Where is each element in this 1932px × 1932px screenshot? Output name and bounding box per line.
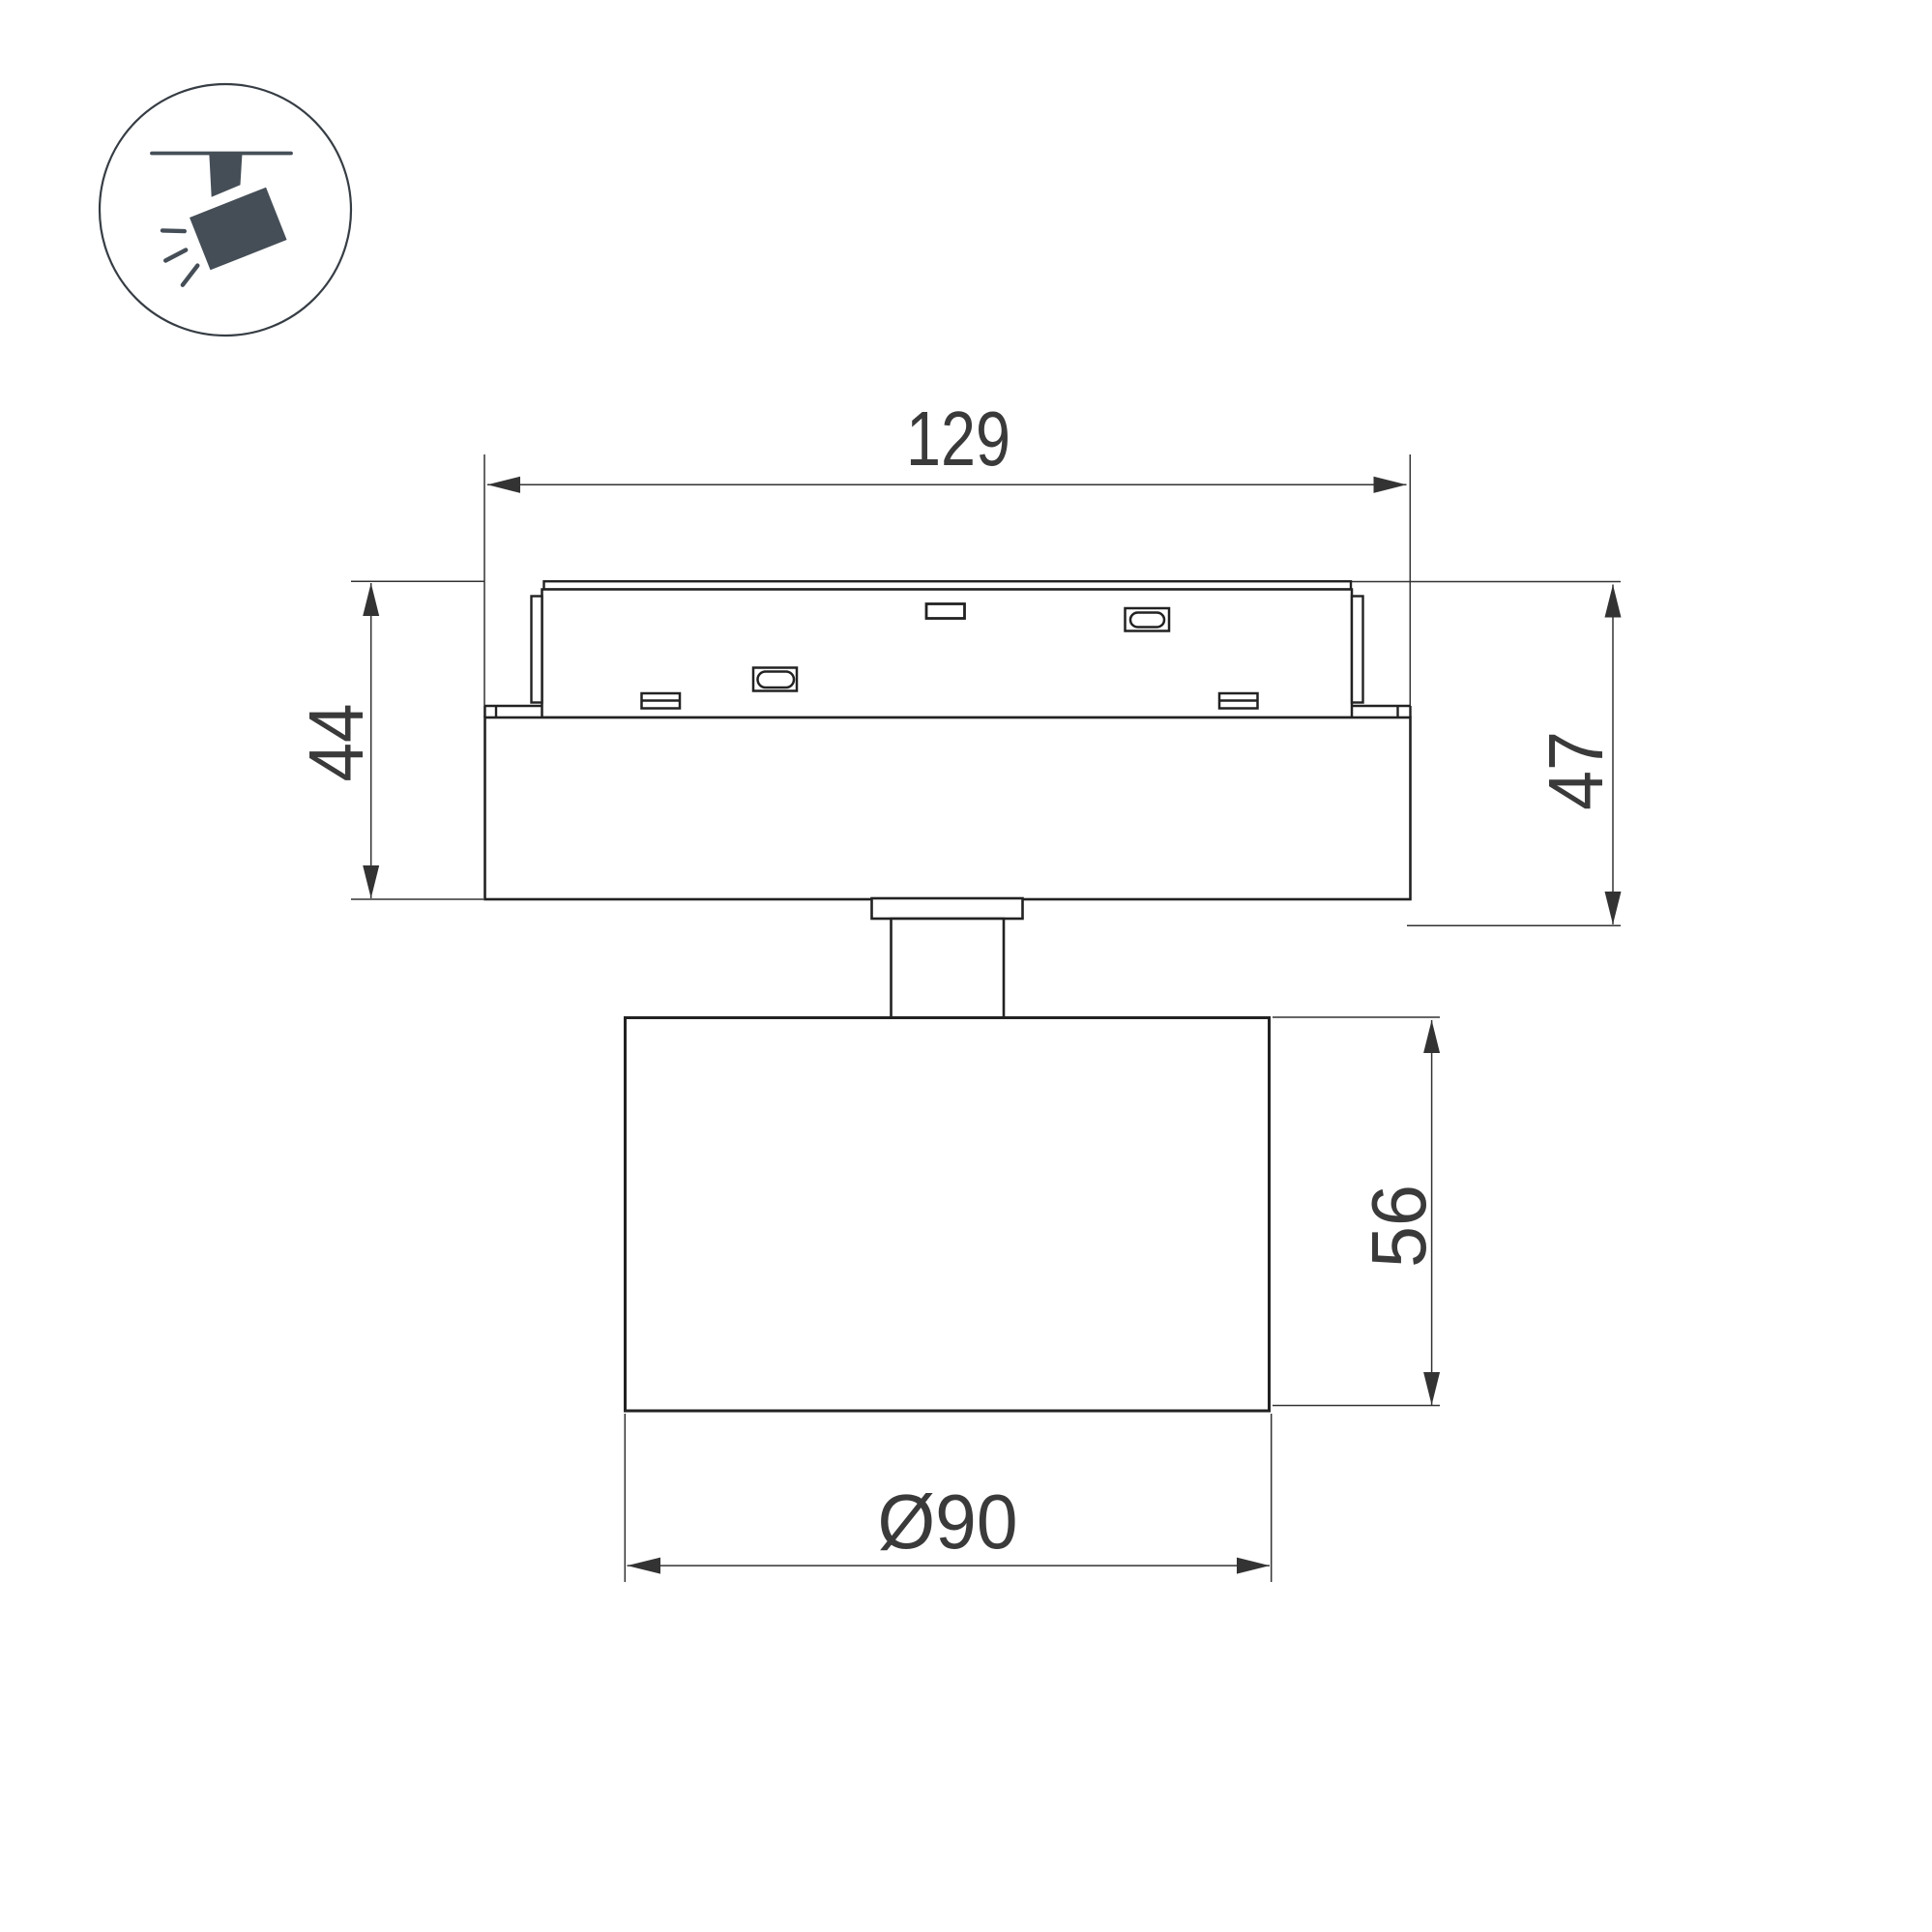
svg-text:Ø90: Ø90 (878, 1478, 1018, 1565)
svg-text:44: 44 (293, 704, 379, 782)
svg-text:47: 47 (1533, 731, 1619, 810)
svg-text:56: 56 (1356, 1185, 1442, 1268)
svg-text:129: 129 (906, 395, 1010, 482)
